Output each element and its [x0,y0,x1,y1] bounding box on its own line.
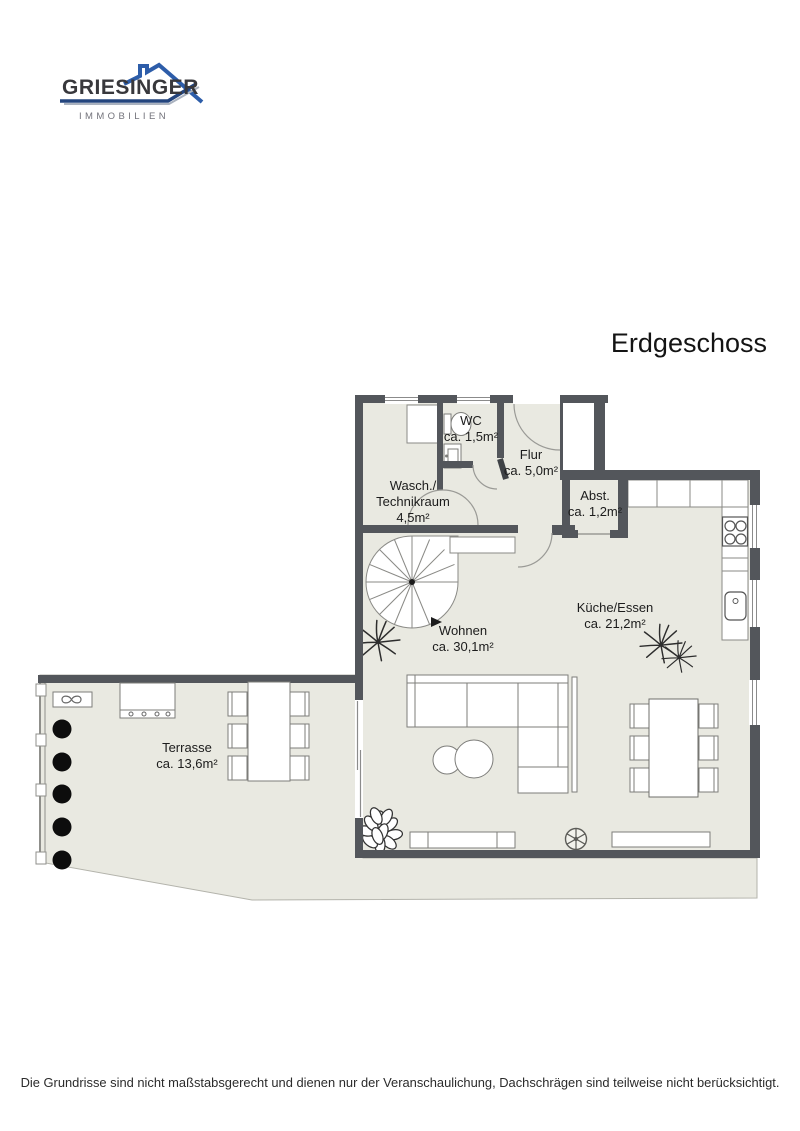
railing-icon [36,683,46,864]
window-icon [749,580,761,627]
sideboard-icon [612,832,710,847]
entrance-opening [513,394,560,404]
room-name: Flur [476,447,586,463]
room-label-kueche: Küche/Essen ca. 21,2m² [560,600,670,632]
room-label-abst: Abst. ca. 1,2m² [540,488,650,520]
window-icon [457,394,490,404]
room-name: Wasch./ [358,478,468,494]
room-name: Technikraum [358,494,468,510]
room-area: ca. 1,5m² [416,429,526,445]
sink-icon [725,592,746,620]
room-area: ca. 13,6m² [132,756,242,772]
room-label-wohnen: Wohnen ca. 30,1m² [408,623,518,655]
sliding-door-icon [355,700,363,818]
ceiling-fan-icon [566,829,587,850]
room-name: Küche/Essen [560,600,670,616]
spiral-staircase-icon [366,536,458,628]
terrace-wall [38,675,363,683]
window-icon [749,505,761,548]
sun-lounger-icon [53,692,92,707]
grill-icon [120,683,175,718]
room-name: Abst. [540,488,650,504]
dining-table-icon [630,699,718,797]
room-label-wasch: Wasch./ Technikraum 4,5m² [358,478,468,526]
window-icon [749,680,761,725]
room-area: ca. 1,2m² [540,504,650,520]
floorplan-drawing [0,0,800,1131]
tv-sideboard-icon [572,677,577,792]
room-area: ca. 5,0m² [476,463,586,479]
room-name: Wohnen [408,623,518,639]
room-label-wc: WC ca. 1,5m² [416,413,526,445]
disclaimer-text: Die Grundrisse sind nicht maßstabsgerech… [0,1075,800,1090]
room-label-terrasse: Terrasse ca. 13,6m² [132,740,242,772]
room-area: ca. 21,2m² [560,616,670,632]
window-icon [385,394,418,404]
room-label-flur: Flur ca. 5,0m² [476,447,586,479]
room-name: Terrasse [132,740,242,756]
room-area: 4,5m² [358,510,468,526]
stove-icon [723,517,748,546]
bench-icon [410,832,515,848]
room-name: WC [416,413,526,429]
room-area: ca. 30,1m² [408,639,518,655]
floorplan-page: GRIESINGER IMMOBILIEN Erdgeschoss [0,0,800,1131]
sideboard-icon [450,537,515,553]
